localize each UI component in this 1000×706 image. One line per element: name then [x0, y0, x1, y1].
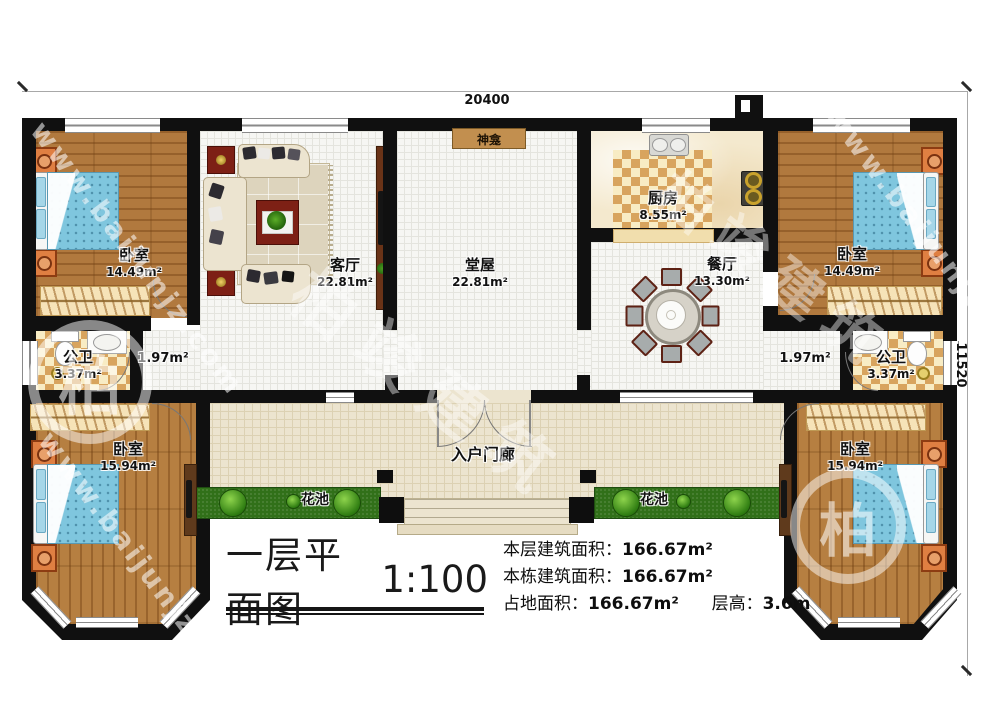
bush-icon — [723, 489, 751, 517]
sofa-pillow — [257, 147, 270, 159]
decor-icon — [216, 155, 226, 165]
plan-title-text: 一层平面图 — [226, 525, 367, 633]
bed-sheet — [48, 465, 75, 543]
corridor-right-label: 1.97m² — [755, 351, 855, 366]
bed-pillow — [36, 209, 46, 239]
knob-icon — [37, 551, 52, 566]
room-label-bedroom-tr: 卧室 14.49m² — [802, 246, 902, 278]
porch-column — [379, 497, 404, 523]
bed-pillow — [926, 502, 936, 533]
wall-bedroomTR-south — [763, 315, 957, 331]
window — [620, 392, 753, 403]
title-underline-thick — [226, 607, 484, 611]
chimney-flue — [741, 100, 750, 112]
room-label-bath-right: 公卫 3.37m² — [841, 349, 941, 381]
wall-stub-left — [385, 375, 398, 403]
porch-stub — [580, 470, 596, 483]
kitchen-threshold — [613, 229, 714, 243]
room-label-bedroom-bl: 卧室 15.94m² — [78, 441, 178, 473]
bed-pillow — [926, 209, 936, 239]
dimension-right-label: 11520 — [952, 335, 968, 395]
bed-pillow — [36, 469, 46, 500]
kitchen-sink — [649, 134, 689, 156]
flower-bed-left-label: 花池 — [285, 492, 345, 509]
burner-icon — [745, 172, 762, 189]
burner-icon — [745, 189, 762, 206]
porch-column — [569, 497, 594, 523]
steps — [404, 498, 571, 526]
dining-chair — [661, 345, 682, 363]
sink-basin — [670, 138, 686, 152]
sofa-pillow — [208, 206, 223, 222]
wardrobe — [40, 286, 150, 316]
bed — [47, 464, 119, 544]
entrance-door-post — [437, 400, 439, 446]
window — [242, 118, 348, 133]
plan-title: 一层平面图 1:100 — [226, 554, 488, 604]
corridor-left-label: 1.97m² — [113, 351, 213, 366]
sofa-pillow — [242, 146, 257, 160]
floor-plan: 20400 11520 — [0, 0, 1000, 706]
room-label-bedroom-tl: 卧室 14.49m² — [84, 247, 184, 279]
shrine-label: 神龛 — [477, 133, 501, 147]
knob-icon — [37, 154, 52, 169]
sofa-pillow — [263, 271, 279, 285]
sofa-pillow — [272, 146, 286, 159]
bed — [47, 172, 119, 250]
room-label-kitchen: 厨房 8.55m² — [613, 190, 713, 222]
room-label-dining: 餐厅 13.30m² — [672, 256, 772, 288]
tv — [781, 480, 787, 518]
plan-title-scale: 1:100 — [381, 558, 488, 601]
nightstand — [31, 544, 57, 572]
knob-icon — [927, 447, 942, 462]
knob-icon — [37, 256, 52, 271]
bush-icon — [219, 489, 247, 517]
room-label-living: 客厅 22.81m² — [295, 257, 395, 289]
bed-sheet — [897, 465, 924, 543]
tv — [186, 480, 192, 518]
decor-icon — [216, 277, 226, 287]
knob-icon — [927, 551, 942, 566]
bed — [853, 172, 925, 250]
room-label-hall: 堂屋 22.81m² — [430, 257, 530, 289]
wall-hall-kitchen — [577, 118, 591, 330]
window — [642, 118, 710, 133]
dining-table-center — [666, 310, 676, 320]
dining-chair — [626, 306, 644, 327]
dimension-line-top — [22, 91, 968, 92]
wall-stub-right — [577, 375, 590, 403]
bed-sheet — [897, 173, 924, 249]
stats-floor-area: 本层建筑面积：166.67m² — [503, 537, 843, 564]
sofa-pillow — [281, 270, 294, 282]
dining-chair — [702, 306, 720, 327]
bed-pillow — [926, 469, 936, 500]
flower-bed-right-label: 花池 — [624, 492, 684, 509]
wall-dining-east — [763, 118, 778, 272]
stats-footprint: 占地面积：166.67m² 层高：3.6m — [503, 591, 843, 618]
wall-bedroomTL-east — [187, 118, 200, 325]
porch-label: 入户门廊 — [423, 446, 543, 465]
nightstand — [921, 544, 947, 572]
bed-sheet — [48, 173, 75, 249]
room-label-bedroom-br: 卧室 15.94m² — [805, 441, 905, 473]
step-lower — [397, 524, 578, 535]
plant-icon — [267, 211, 286, 230]
bed — [853, 464, 925, 544]
wall-living-hall — [383, 118, 397, 330]
bay-window — [76, 617, 138, 628]
title-underline-thin — [226, 613, 484, 615]
bed-pillow — [36, 502, 46, 533]
knob-icon — [37, 447, 52, 462]
wardrobe — [827, 286, 942, 316]
stats-block: 本层建筑面积：166.67m² 本栋建筑面积：166.67m² 占地面积：166… — [503, 537, 843, 618]
window — [326, 392, 354, 403]
porch-stub — [377, 470, 393, 483]
bay-window — [838, 617, 900, 628]
sofa-pillow — [287, 148, 300, 161]
bed-pillow — [926, 177, 936, 207]
side-table — [207, 268, 235, 296]
dimension-top-label: 20400 — [437, 93, 537, 108]
wardrobe — [30, 404, 150, 431]
wall-bedroomTL-south — [22, 316, 151, 331]
knob-icon — [927, 154, 942, 169]
sofa-pillow — [246, 269, 261, 283]
window — [813, 118, 910, 133]
side-table — [207, 146, 235, 174]
entrance-door-post — [529, 400, 531, 446]
shrine: 神龛 — [452, 128, 526, 149]
knob-icon — [927, 256, 942, 271]
wardrobe — [806, 404, 926, 431]
sink-basin — [652, 138, 668, 152]
bed-pillow — [36, 177, 46, 207]
window — [65, 118, 160, 133]
stats-building-area: 本栋建筑面积：166.67m² — [503, 564, 843, 591]
